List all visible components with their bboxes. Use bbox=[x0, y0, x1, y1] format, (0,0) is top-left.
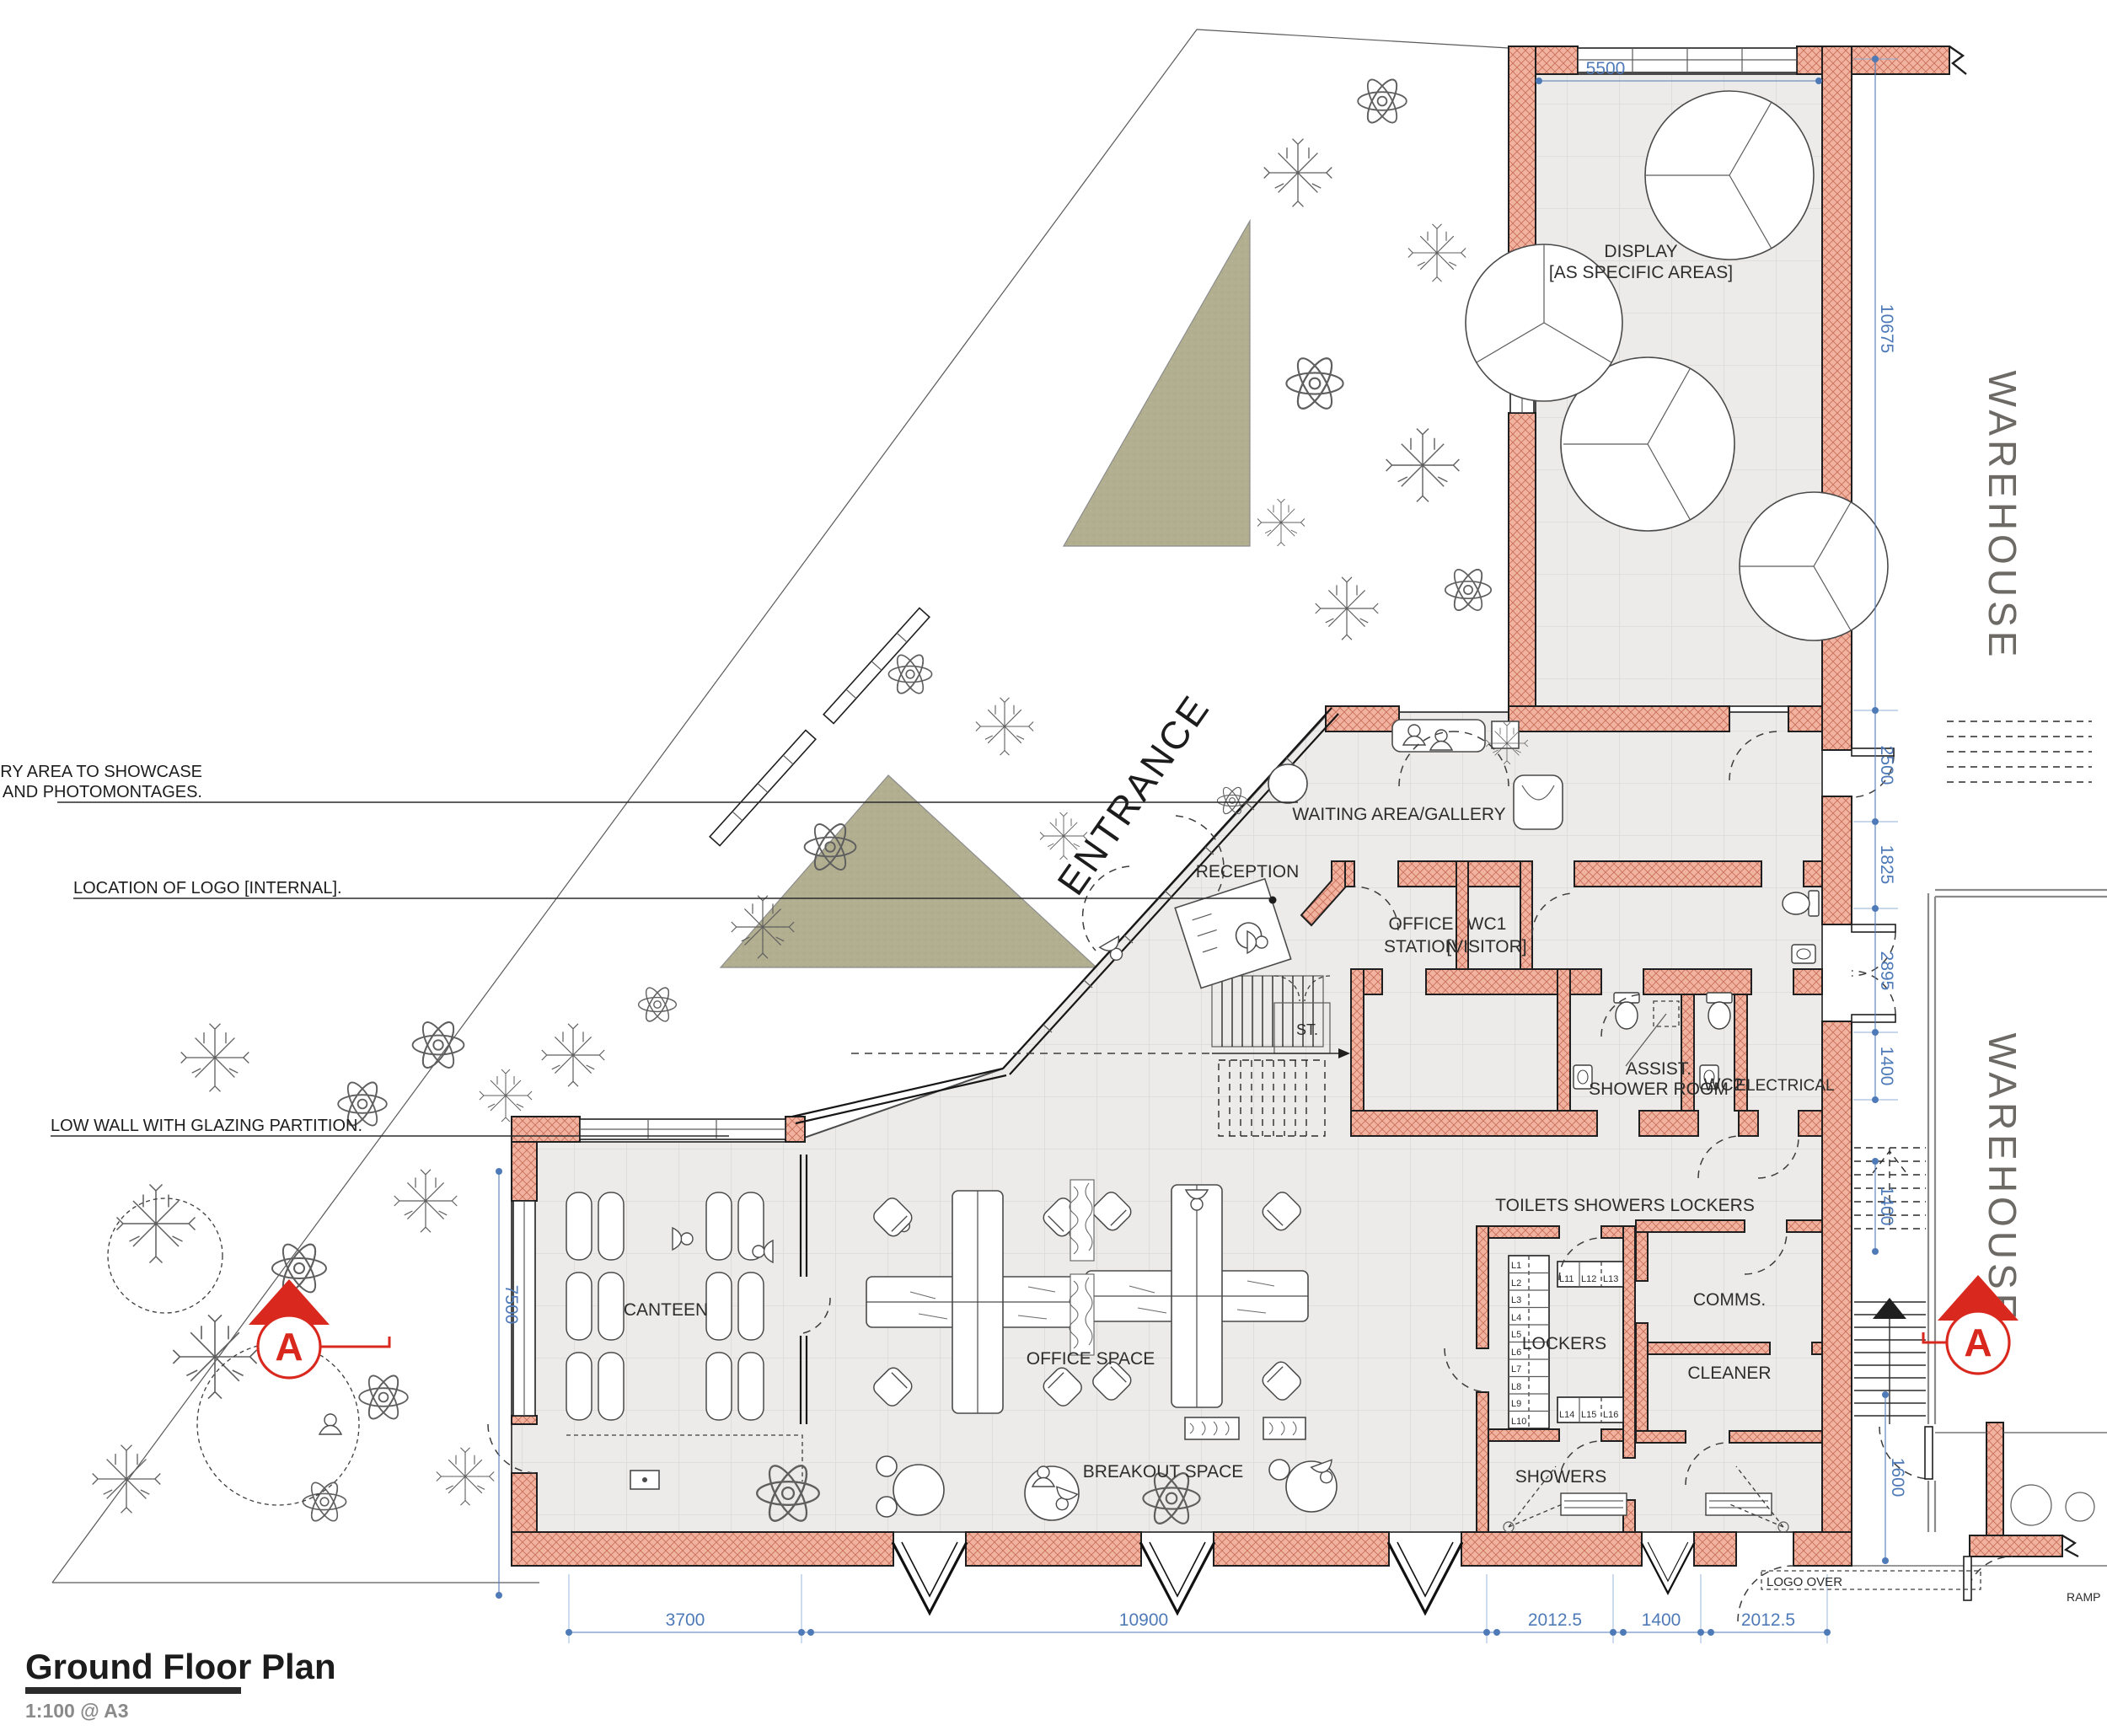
label-comms: COMMS. bbox=[1693, 1290, 1766, 1310]
label-assist-1: ASSIST. bbox=[1626, 1059, 1691, 1079]
label-display-2: [AS SPECIFIC AREAS] bbox=[1549, 263, 1733, 282]
locker-bank-top: L11 L12 L13 bbox=[1557, 1262, 1623, 1287]
locker-label: L3 bbox=[1511, 1295, 1521, 1305]
label-warehouse-upper: WAREHOUSE bbox=[1981, 371, 2024, 662]
title-block: Ground Floor Plan 1:100 @ A3 bbox=[25, 1647, 336, 1722]
locker-label: L15 bbox=[1581, 1410, 1596, 1420]
dim-7500: 7500 bbox=[501, 1285, 521, 1325]
wc1-toilet bbox=[1783, 891, 1819, 916]
dim-2500: 2500 bbox=[1877, 746, 1896, 785]
label-st: ST. bbox=[1296, 1021, 1318, 1038]
locker-label: L12 bbox=[1581, 1274, 1596, 1284]
note-logo: LOCATION OF LOGO [INTERNAL]. bbox=[73, 879, 342, 897]
sheet-title: Ground Floor Plan bbox=[25, 1647, 336, 1686]
floor-plan-sheet: L1 L2 L3 L4 L5 L6 L7 L8 L9 L10 L11 L12 L… bbox=[0, 0, 2107, 1736]
locker-label: L7 bbox=[1511, 1364, 1521, 1374]
person-figure bbox=[319, 1414, 341, 1434]
locker-label: L8 bbox=[1511, 1382, 1521, 1392]
assist-toilet bbox=[1614, 993, 1639, 1029]
label-showers: SHOWERS bbox=[1515, 1467, 1607, 1487]
label-office-space: OFFICE SPACE bbox=[1027, 1349, 1155, 1369]
dim-bottom-2012a: 2012.5 bbox=[1528, 1610, 1582, 1630]
section-marker-letter: A bbox=[1964, 1321, 1992, 1364]
locker-bank-bottom: L14 L15 L16 bbox=[1557, 1397, 1623, 1423]
dim-bottom-2012b: 2012.5 bbox=[1741, 1610, 1795, 1630]
garden-triangle-middle bbox=[721, 775, 1096, 967]
wc2-toilet bbox=[1707, 993, 1732, 1029]
locker-label: L1 bbox=[1511, 1261, 1521, 1271]
warehouse-stair-upper-dashed bbox=[1947, 721, 2092, 782]
section-marker-letter: A bbox=[275, 1325, 303, 1369]
note-gallery-1: GALLERY AREA TO SHOWCASE bbox=[0, 763, 202, 781]
label-wc1-2: [VISITOR] bbox=[1446, 937, 1526, 956]
locker-label: L16 bbox=[1603, 1410, 1618, 1420]
label-canteen: CANTEEN bbox=[624, 1300, 708, 1320]
dim-stair-1400: 1400 bbox=[1877, 1187, 1896, 1226]
dim-2895: 2895 bbox=[1877, 951, 1896, 991]
label-logo-over: LOGO OVER bbox=[1767, 1575, 1842, 1589]
dim-1400: 1400 bbox=[1877, 1047, 1896, 1086]
garden-triangle-upper bbox=[1064, 221, 1250, 546]
label-wc1-1: WC1 bbox=[1467, 914, 1507, 934]
dim-bottom-10900: 10900 bbox=[1119, 1610, 1168, 1630]
locker-label: L13 bbox=[1603, 1274, 1618, 1284]
label-toilets: TOILETS SHOWERS LOCKERS bbox=[1495, 1196, 1755, 1215]
wc1-basin bbox=[1792, 945, 1815, 963]
warehouse-stair-lower bbox=[1854, 1298, 1926, 1424]
locker-label: L10 bbox=[1511, 1417, 1526, 1427]
locker-label: L11 bbox=[1559, 1274, 1574, 1284]
dim-right-total: 10675 bbox=[1877, 304, 1896, 353]
locker-label: L9 bbox=[1511, 1399, 1521, 1409]
section-marker-left: A bbox=[249, 1279, 389, 1378]
locker-label: L4 bbox=[1511, 1313, 1521, 1323]
dim-1825: 1825 bbox=[1877, 845, 1896, 885]
locker-label: L14 bbox=[1559, 1410, 1574, 1420]
dim-bottom-3700: 3700 bbox=[666, 1610, 705, 1630]
label-ramp: RAMP bbox=[2067, 1590, 2100, 1604]
label-electrical: ELECTRICAL bbox=[1735, 1077, 1834, 1095]
note-gallery-2: PRODUCTS AND PHOTOMONTAGES. bbox=[0, 783, 202, 801]
floor-plan-drawing: L1 L2 L3 L4 L5 L6 L7 L8 L9 L10 L11 L12 L… bbox=[0, 0, 2107, 1736]
label-office-station-1: OFFICE bbox=[1389, 914, 1454, 934]
wall-break-symbol bbox=[1949, 46, 1966, 74]
dim-bottom-1400: 1400 bbox=[1642, 1610, 1681, 1630]
label-waiting-area: WAITING AREA/GALLERY bbox=[1292, 805, 1505, 824]
locker-label: L5 bbox=[1511, 1330, 1521, 1340]
label-warehouse-lower: WAREHOUSE bbox=[1981, 1033, 2024, 1324]
note-low-wall: LOW WALL WITH GLAZING PARTITION. bbox=[51, 1117, 362, 1135]
label-display-1: DISPLAY bbox=[1604, 242, 1677, 261]
title-underline bbox=[25, 1687, 241, 1694]
dim-display-width: 5500 bbox=[1586, 59, 1626, 78]
wall-break-symbol bbox=[2062, 1535, 2078, 1557]
locker-label: L6 bbox=[1511, 1348, 1521, 1358]
label-lockers: LOCKERS bbox=[1522, 1334, 1606, 1353]
sheet-scale: 1:100 @ A3 bbox=[25, 1700, 129, 1722]
label-reception: RECEPTION bbox=[1196, 862, 1300, 881]
dim-1600: 1600 bbox=[1888, 1458, 1907, 1498]
label-cleaner: CLEANER bbox=[1687, 1364, 1771, 1383]
label-breakout: BREAKOUT SPACE bbox=[1083, 1462, 1244, 1481]
locker-label: L2 bbox=[1511, 1278, 1521, 1289]
tree-canopy-dashed bbox=[108, 1198, 222, 1313]
